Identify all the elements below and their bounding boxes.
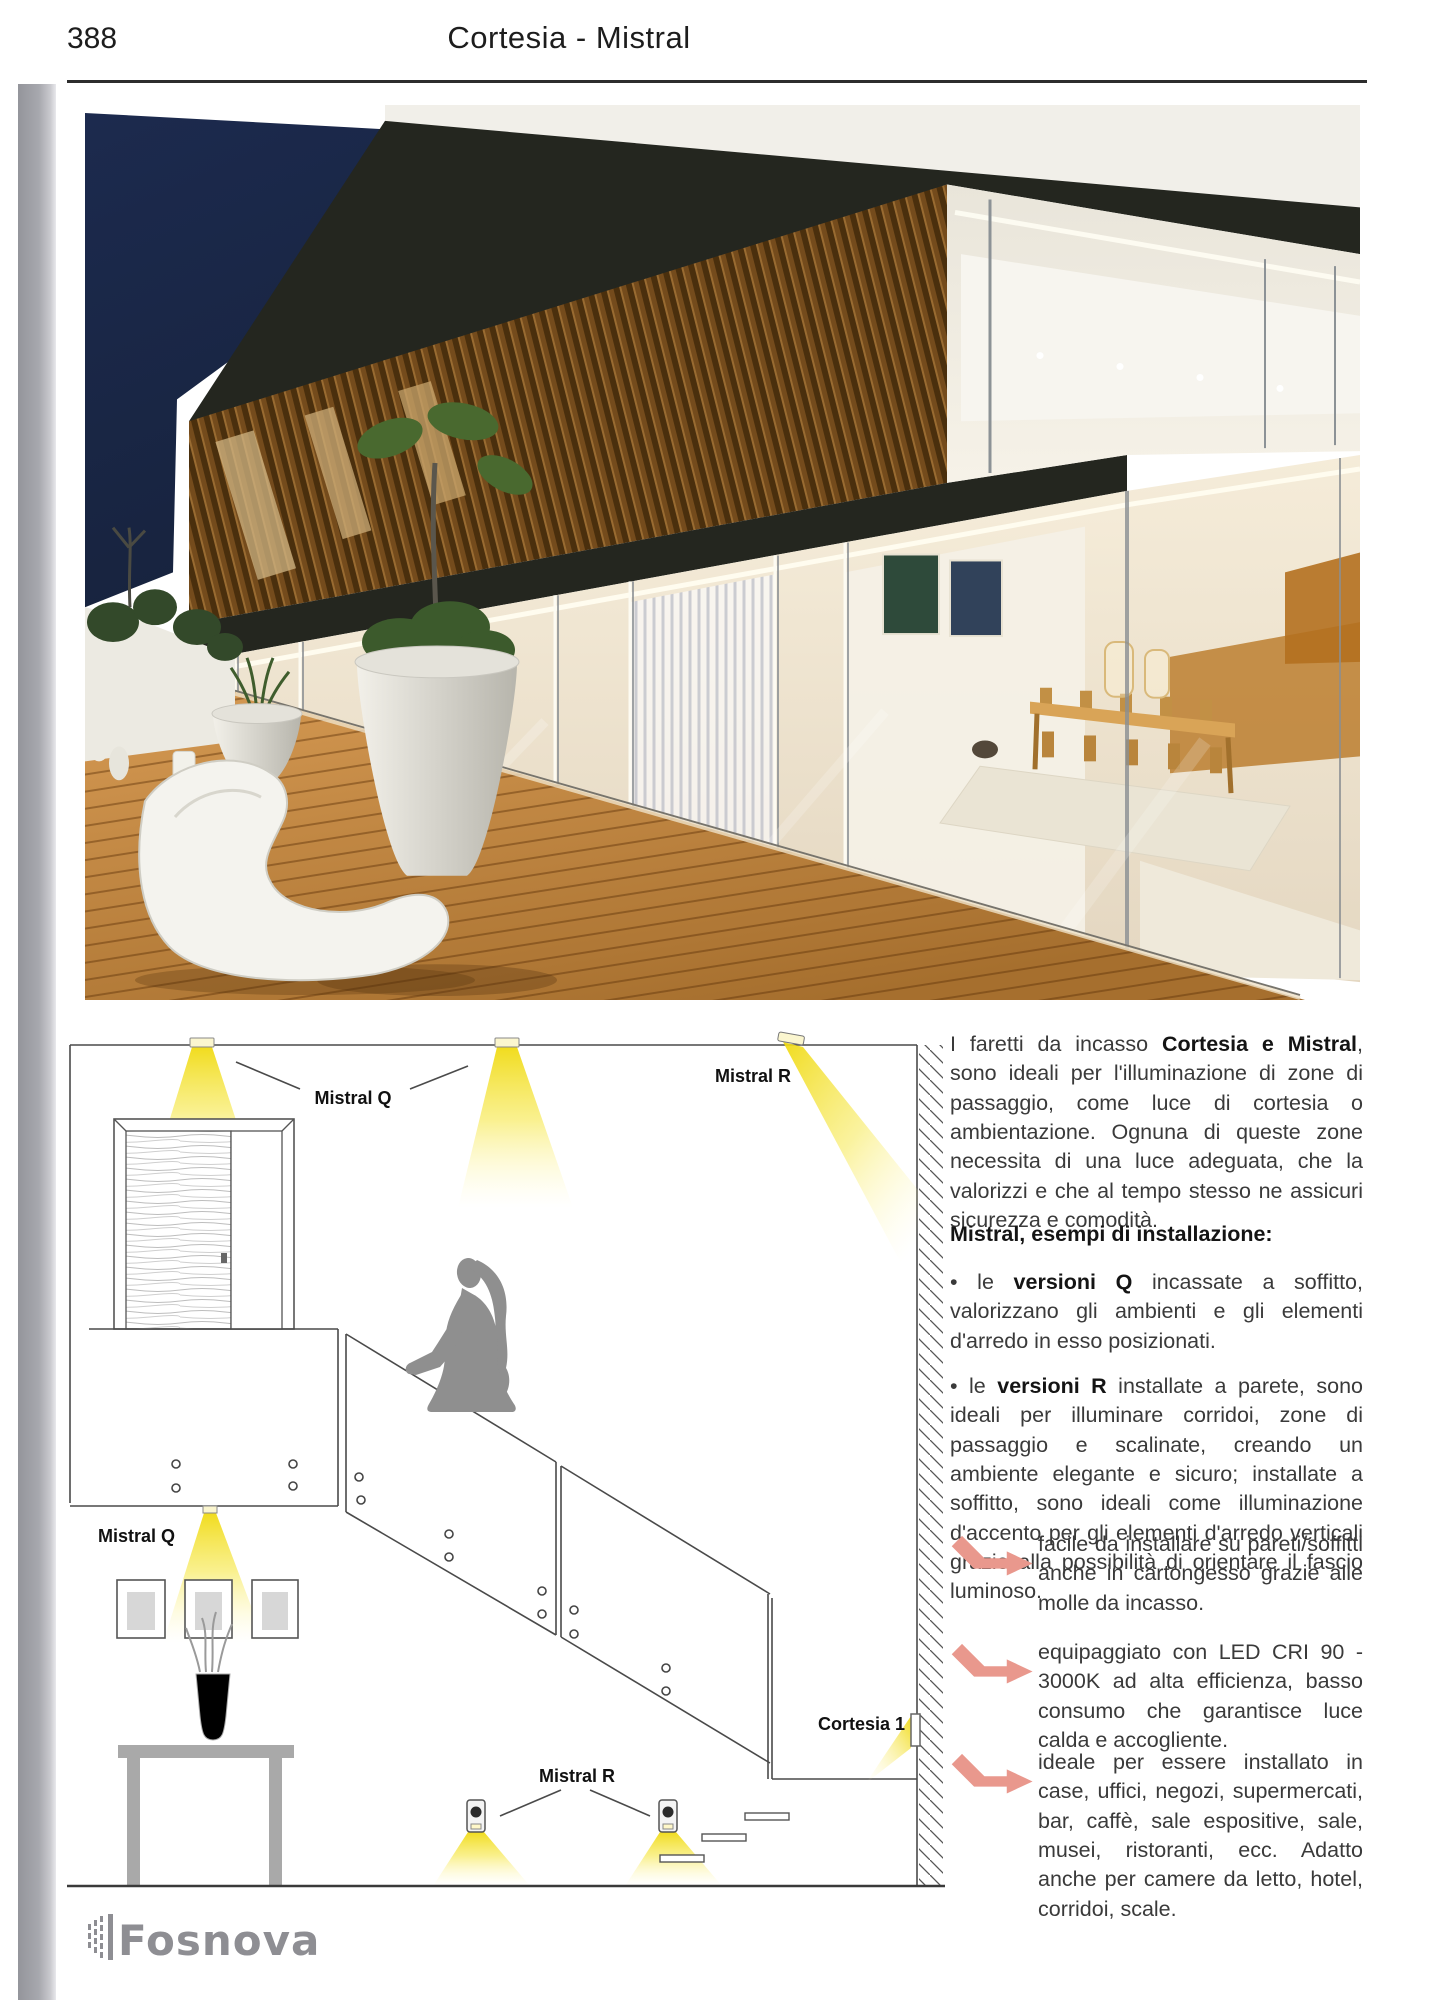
mistral-q-downlight bbox=[190, 1038, 214, 1047]
feature-item: facile da installare su pareti/soffitti … bbox=[950, 1530, 1363, 1618]
page-title: Cortesia - Mistral bbox=[447, 20, 690, 56]
label-mistral-r-bottom: Mistral R bbox=[539, 1766, 615, 1786]
bullet-versioni-q: • le versioni Q incassate a soffitto, va… bbox=[950, 1268, 1363, 1356]
label-mistral-r-top: Mistral R bbox=[715, 1066, 791, 1086]
label-mistral-q-wall: Mistral Q bbox=[98, 1526, 175, 1546]
label-pointer-line bbox=[500, 1790, 561, 1816]
label-pointer-line bbox=[590, 1790, 650, 1816]
label-mistral-q-top: Mistral Q bbox=[314, 1088, 391, 1108]
mistral-q-downlight bbox=[495, 1038, 519, 1047]
landing-parapet bbox=[70, 1329, 338, 1506]
mistral-q-soffit-light bbox=[203, 1506, 217, 1513]
feature-text: ideale per essere installato in case, uf… bbox=[1038, 1748, 1363, 1924]
intro-paragraph: I faretti da incasso Cortesia e Mistral,… bbox=[950, 1030, 1363, 1235]
mistral-r-ceiling-spot bbox=[778, 1032, 805, 1045]
mistral-r-wall-light bbox=[659, 1800, 677, 1832]
page-binding-gutter bbox=[18, 84, 56, 2000]
bent-arrow-right-icon bbox=[950, 1640, 1036, 1696]
feature-item: ideale per essere installato in case, uf… bbox=[950, 1748, 1363, 1924]
angled-light-beam bbox=[783, 1042, 918, 1295]
label-pointer-line bbox=[236, 1062, 300, 1089]
door-handle bbox=[221, 1253, 227, 1263]
light-cone bbox=[433, 1832, 530, 1886]
bent-arrow-right-icon bbox=[950, 1750, 1036, 1806]
label-pointer-line bbox=[410, 1066, 468, 1089]
light-cone bbox=[458, 1047, 573, 1208]
hatched-wall bbox=[919, 1045, 943, 1886]
mistral-r-wall-light bbox=[467, 1800, 485, 1832]
brand-logo: Fosnova bbox=[86, 1908, 346, 1973]
glass-fixing-bolts bbox=[172, 1460, 670, 1695]
label-cortesia: Cortesia 1 bbox=[818, 1714, 905, 1734]
bent-arrow-right-icon bbox=[950, 1532, 1036, 1588]
catalog-page: 388 Cortesia - Mistral bbox=[0, 0, 1435, 2000]
door bbox=[114, 1119, 294, 1329]
page-number: 388 bbox=[67, 22, 117, 56]
feature-text: facile da installare su pareti/soffitti … bbox=[1038, 1530, 1363, 1618]
hero-photo bbox=[85, 105, 1360, 1000]
feature-item: equipaggiato con LED CRI 90 - 3000K ad a… bbox=[950, 1638, 1363, 1755]
feature-text: equipaggiato con LED CRI 90 - 3000K ad a… bbox=[1038, 1638, 1363, 1755]
cortesia-wall-light bbox=[911, 1714, 920, 1746]
person-silhouette bbox=[406, 1256, 516, 1412]
section-heading: Mistral, esempi di installazione: bbox=[950, 1222, 1363, 1247]
header-rule bbox=[67, 80, 1367, 83]
logo-bars-icon bbox=[88, 1914, 113, 1960]
console-table bbox=[118, 1612, 294, 1886]
picture-frames bbox=[117, 1580, 298, 1638]
installation-diagram: Mistral Q Mistral R bbox=[67, 1010, 945, 1910]
logo-text: Fosnova bbox=[118, 1916, 320, 1965]
